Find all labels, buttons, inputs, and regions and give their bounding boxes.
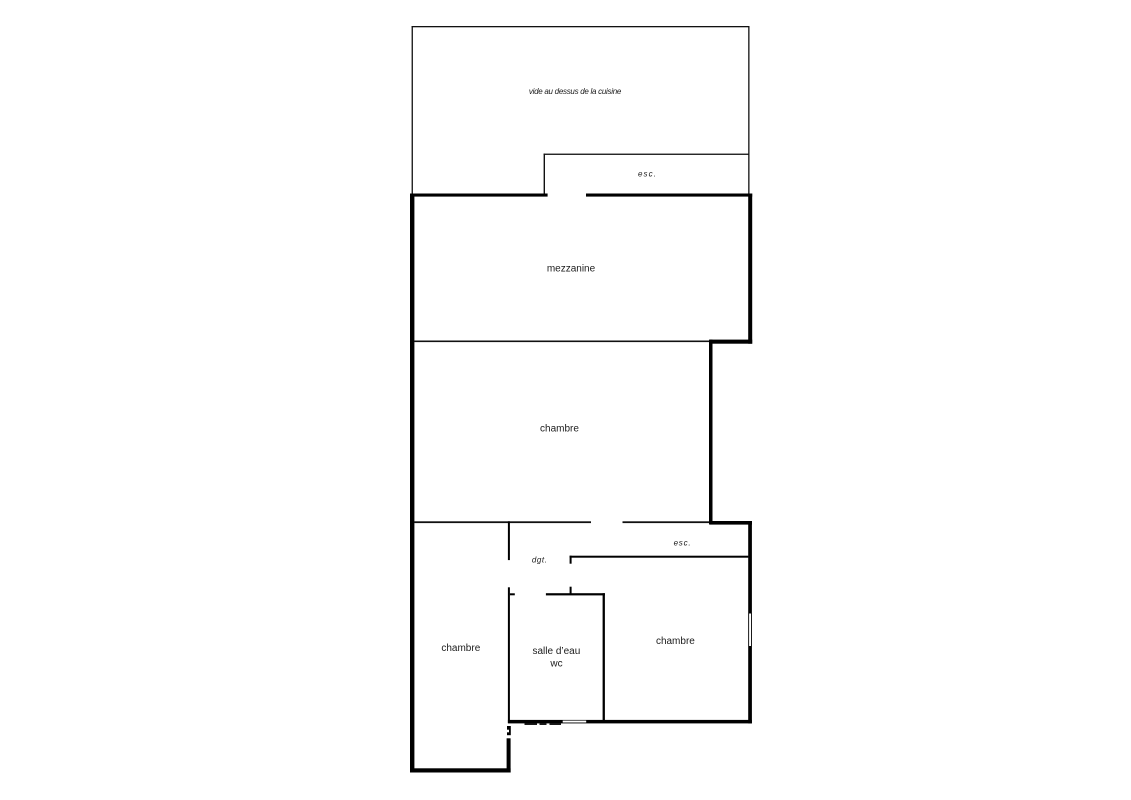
svg-text:salle d’eau: salle d’eau bbox=[532, 646, 580, 657]
svg-text:chambre: chambre bbox=[540, 424, 579, 435]
svg-text:chambre: chambre bbox=[441, 643, 480, 654]
svg-text:chambre: chambre bbox=[656, 636, 695, 647]
svg-text:mezzanine: mezzanine bbox=[547, 263, 596, 274]
svg-text:dgt.: dgt. bbox=[532, 555, 548, 564]
svg-text:wc: wc bbox=[549, 659, 562, 670]
svg-text:esc.: esc. bbox=[638, 170, 657, 179]
svg-text:vide au dessus de la cuisine: vide au dessus de la cuisine bbox=[529, 87, 622, 96]
svg-text:esc.: esc. bbox=[674, 538, 692, 547]
